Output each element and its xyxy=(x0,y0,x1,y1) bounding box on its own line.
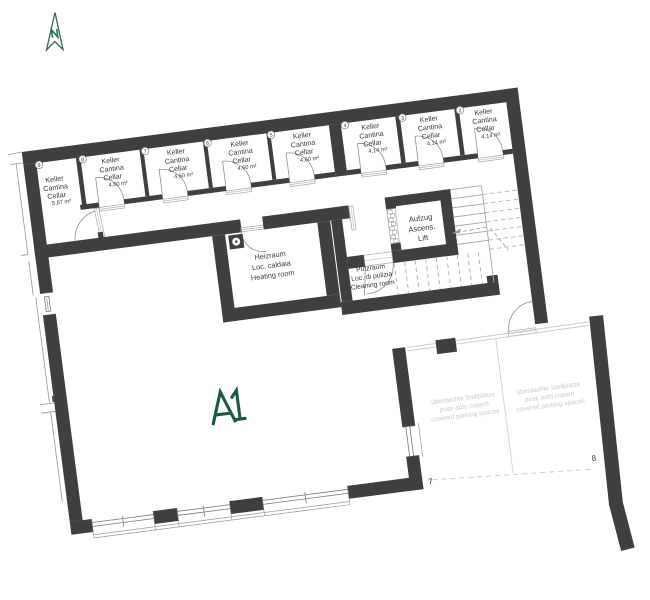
svg-text:4,14 m²: 4,14 m² xyxy=(368,147,388,155)
svg-text:4,60 m²: 4,60 m² xyxy=(108,180,128,188)
svg-text:8: 8 xyxy=(591,454,597,464)
svg-text:4,60 m²: 4,60 m² xyxy=(300,156,320,164)
svg-text:4,60 m²: 4,60 m² xyxy=(237,164,257,172)
svg-text:5,87 m²: 5,87 m² xyxy=(52,199,72,207)
svg-text:4,60 m²: 4,60 m² xyxy=(174,172,194,180)
svg-text:4,14 m²: 4,14 m² xyxy=(427,139,447,147)
svg-text:Lift: Lift xyxy=(418,233,430,243)
svg-text:7: 7 xyxy=(428,477,434,487)
